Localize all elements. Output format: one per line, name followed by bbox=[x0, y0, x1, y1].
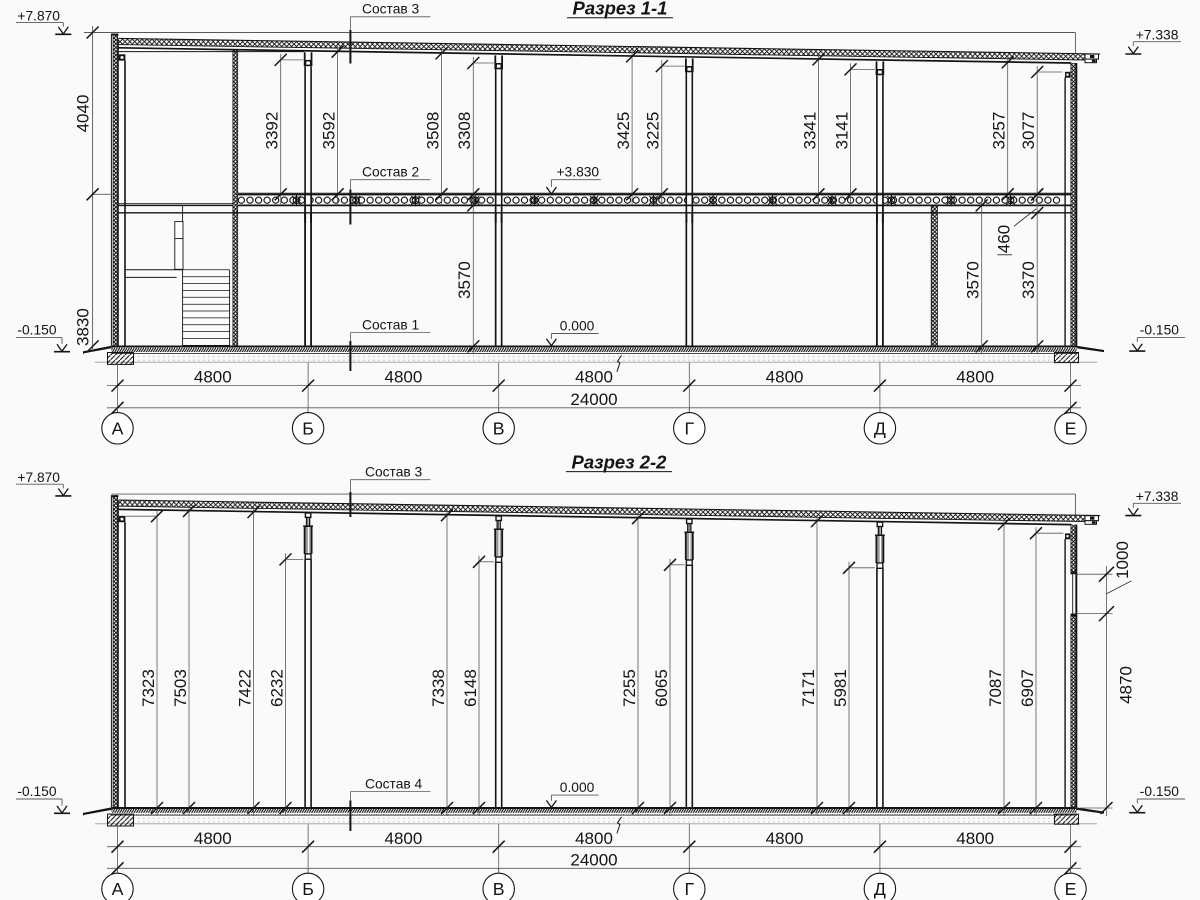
svg-text:0.000: 0.000 bbox=[560, 780, 595, 795]
svg-text:1000: 1000 bbox=[1113, 541, 1132, 579]
svg-text:-0.150: -0.150 bbox=[17, 784, 56, 799]
svg-text:7323: 7323 bbox=[139, 669, 158, 707]
svg-text:В: В bbox=[493, 879, 505, 899]
svg-text:А: А bbox=[112, 419, 124, 439]
svg-text:7422: 7422 bbox=[235, 669, 254, 707]
svg-text:3370: 3370 bbox=[1019, 261, 1038, 299]
svg-text:-0.150: -0.150 bbox=[1140, 784, 1179, 799]
svg-text:3570: 3570 bbox=[964, 261, 983, 299]
svg-text:4800: 4800 bbox=[384, 829, 422, 848]
svg-text:А: А bbox=[112, 879, 124, 899]
svg-text:Состав 3: Состав 3 bbox=[362, 2, 420, 17]
svg-text:3830: 3830 bbox=[74, 308, 93, 346]
svg-text:Б: Б bbox=[302, 419, 314, 439]
svg-text:Состав 2: Состав 2 bbox=[362, 164, 419, 179]
svg-text:4800: 4800 bbox=[766, 368, 804, 387]
svg-text:4800: 4800 bbox=[194, 829, 232, 848]
svg-text:3225: 3225 bbox=[644, 112, 663, 150]
svg-text:4870: 4870 bbox=[1117, 666, 1136, 704]
svg-text:3257: 3257 bbox=[990, 112, 1009, 150]
svg-text:В: В bbox=[493, 419, 505, 439]
svg-text:4800: 4800 bbox=[384, 368, 422, 387]
svg-text:Д: Д bbox=[874, 419, 886, 439]
svg-text:24000: 24000 bbox=[570, 850, 617, 869]
svg-text:5981: 5981 bbox=[831, 669, 850, 707]
svg-text:7171: 7171 bbox=[799, 669, 818, 707]
svg-text:4800: 4800 bbox=[194, 368, 232, 387]
svg-text:Г: Г bbox=[685, 879, 695, 899]
svg-text:3425: 3425 bbox=[614, 112, 633, 150]
svg-text:Е: Е bbox=[1065, 879, 1077, 899]
svg-text:Состав 3: Состав 3 bbox=[365, 464, 423, 479]
svg-text:4040: 4040 bbox=[74, 95, 93, 133]
svg-text:24000: 24000 bbox=[570, 390, 617, 409]
svg-text:4800: 4800 bbox=[575, 368, 613, 387]
svg-text:3077: 3077 bbox=[1019, 112, 1038, 150]
svg-text:+7.870: +7.870 bbox=[17, 9, 60, 24]
svg-text:+7.338: +7.338 bbox=[1136, 489, 1179, 504]
svg-text:460: 460 bbox=[995, 225, 1014, 253]
svg-text:+3.830: +3.830 bbox=[557, 165, 600, 180]
svg-text:Разрез 2-2: Разрез 2-2 bbox=[572, 451, 668, 472]
svg-text:7255: 7255 bbox=[620, 669, 639, 707]
svg-text:7503: 7503 bbox=[171, 669, 190, 707]
svg-text:-0.150: -0.150 bbox=[17, 322, 56, 337]
svg-text:+7.870: +7.870 bbox=[17, 470, 60, 485]
svg-text:Состав 4: Состав 4 bbox=[365, 776, 423, 791]
svg-text:3508: 3508 bbox=[423, 112, 442, 150]
svg-text:-0.150: -0.150 bbox=[1140, 322, 1179, 337]
svg-text:4800: 4800 bbox=[575, 829, 613, 848]
svg-text:4800: 4800 bbox=[956, 829, 994, 848]
svg-text:6065: 6065 bbox=[652, 669, 671, 707]
svg-text:3392: 3392 bbox=[263, 112, 282, 150]
svg-text:7087: 7087 bbox=[986, 669, 1005, 707]
svg-text:7338: 7338 bbox=[429, 669, 448, 707]
svg-text:3592: 3592 bbox=[319, 112, 338, 150]
svg-text:3570: 3570 bbox=[455, 261, 474, 299]
svg-text:0.000: 0.000 bbox=[560, 318, 595, 333]
svg-text:3141: 3141 bbox=[832, 112, 851, 150]
svg-text:Е: Е bbox=[1065, 419, 1077, 439]
svg-text:4800: 4800 bbox=[766, 829, 804, 848]
svg-text:Д: Д bbox=[874, 879, 886, 899]
svg-text:6232: 6232 bbox=[267, 669, 286, 707]
svg-text:Г: Г bbox=[685, 419, 695, 439]
svg-text:Состав 1: Состав 1 bbox=[362, 317, 419, 332]
svg-text:Б: Б bbox=[302, 879, 314, 899]
svg-text:6148: 6148 bbox=[461, 669, 480, 707]
svg-text:+7.338: +7.338 bbox=[1136, 27, 1179, 42]
svg-text:6907: 6907 bbox=[1018, 669, 1037, 707]
svg-text:3308: 3308 bbox=[455, 112, 474, 150]
svg-text:3341: 3341 bbox=[800, 112, 819, 150]
svg-text:Разрез 1-1: Разрез 1-1 bbox=[573, 0, 668, 19]
svg-text:4800: 4800 bbox=[956, 368, 994, 387]
